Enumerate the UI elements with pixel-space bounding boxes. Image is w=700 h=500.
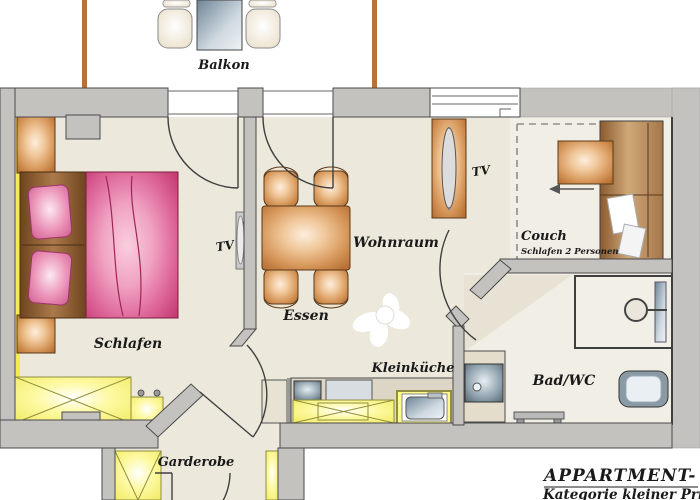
dining-chair bbox=[264, 171, 298, 207]
label-couch: Couch bbox=[521, 229, 567, 244]
toilet-lid bbox=[626, 376, 661, 402]
top-wall-left bbox=[0, 88, 168, 117]
tv-screen-living bbox=[442, 128, 456, 208]
balcony-chair-right bbox=[246, 9, 280, 48]
bottom-wall-right bbox=[280, 423, 672, 448]
washbasin bbox=[465, 364, 503, 402]
kitchen-sink bbox=[294, 381, 321, 400]
footer-text: APPARTMENT- 23 Kategorie kleiner Priel bbox=[542, 466, 700, 500]
label-wohnraum: Wohnraum bbox=[353, 235, 439, 251]
label-essen: Essen bbox=[282, 308, 329, 324]
fridge-handle bbox=[428, 393, 442, 398]
label-schlafen: Schlafen bbox=[94, 336, 162, 352]
shower-head-icon bbox=[625, 299, 647, 321]
apartment-title: APPARTMENT- 23 bbox=[542, 466, 700, 486]
dining-table bbox=[262, 206, 350, 270]
bed-pillow-bottom bbox=[28, 250, 72, 305]
right-wall bbox=[672, 88, 700, 448]
dining-chair bbox=[314, 171, 348, 207]
balcony-chair-top-right bbox=[249, 0, 276, 7]
shower-glass bbox=[655, 282, 666, 342]
entry-wall-left bbox=[102, 448, 115, 500]
entry-wall-right bbox=[278, 448, 304, 500]
window bbox=[430, 88, 520, 117]
kitchen-partition bbox=[287, 378, 291, 425]
couch-bath-wall bbox=[500, 259, 672, 273]
balcony-rail-left bbox=[82, 0, 87, 88]
fridge-top bbox=[406, 397, 444, 419]
label-garderobe: Garderobe bbox=[158, 455, 235, 470]
nightstand-top bbox=[17, 117, 55, 173]
label-kleinkueche: Kleinküche bbox=[371, 361, 455, 376]
label-bad-wc: Bad/WC bbox=[532, 373, 596, 389]
balcony-chair-top-left bbox=[163, 0, 190, 7]
dresser-knob bbox=[154, 390, 160, 396]
couch-side-table bbox=[558, 141, 613, 184]
label-balkon: Balkon bbox=[197, 58, 249, 73]
kitchen-stove bbox=[326, 380, 372, 400]
label-couch-sub: Schlafen 2 Personen bbox=[521, 247, 619, 257]
divider-wall bbox=[244, 117, 256, 329]
balcony bbox=[82, 0, 377, 88]
top-wall-right bbox=[333, 88, 430, 117]
balcony-rail-right bbox=[372, 0, 377, 88]
left-wall bbox=[0, 88, 15, 448]
top-wall-mid bbox=[238, 88, 263, 117]
bottom-wall-left bbox=[0, 420, 158, 448]
dining-chair bbox=[264, 268, 298, 304]
garderobe-shelf bbox=[266, 451, 278, 500]
kitchen bbox=[262, 378, 453, 425]
balcony-chair-left bbox=[158, 9, 192, 48]
kitchen-bath-wall bbox=[453, 326, 464, 425]
basin-drain bbox=[473, 383, 481, 391]
dining-chair bbox=[314, 268, 348, 304]
floorplan-svg: Balkon Schlafen TV Wohnraum Essen TV Cou… bbox=[0, 0, 700, 500]
apartment-subtitle: Kategorie kleiner Priel bbox=[542, 487, 700, 500]
garderobe-wardrobe bbox=[115, 451, 161, 500]
bed-pillow-top bbox=[28, 184, 72, 239]
dresser-knob bbox=[138, 390, 144, 396]
nightstand-bottom bbox=[17, 315, 55, 353]
balcony-table bbox=[197, 0, 242, 50]
tv-screen-bedroom bbox=[237, 216, 244, 264]
chimney-pillar bbox=[66, 115, 100, 139]
floorplan-page: Balkon Schlafen TV Wohnraum Essen TV Cou… bbox=[0, 0, 700, 500]
